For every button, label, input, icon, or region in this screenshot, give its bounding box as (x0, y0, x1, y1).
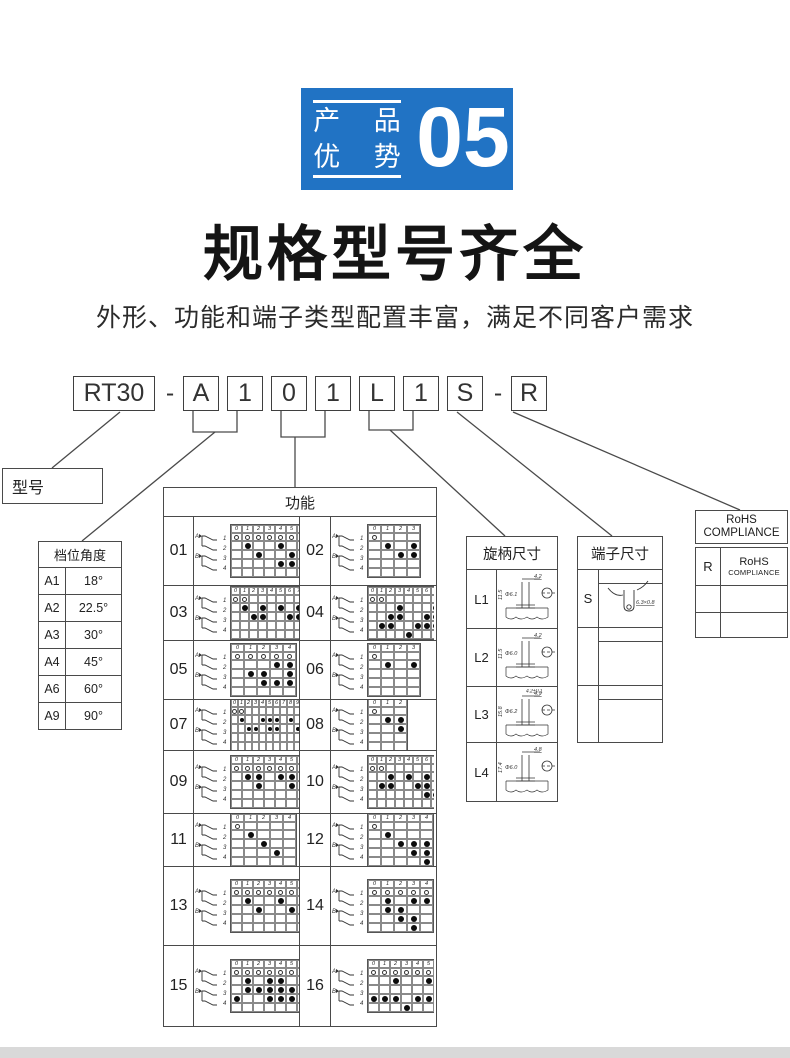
product-advantage-poster: 产 品 优 势 05 规格型号齐全 外形、功能和端子类型配置丰富，满足不同客户需… (0, 0, 790, 1058)
connector-lines (0, 0, 790, 1058)
